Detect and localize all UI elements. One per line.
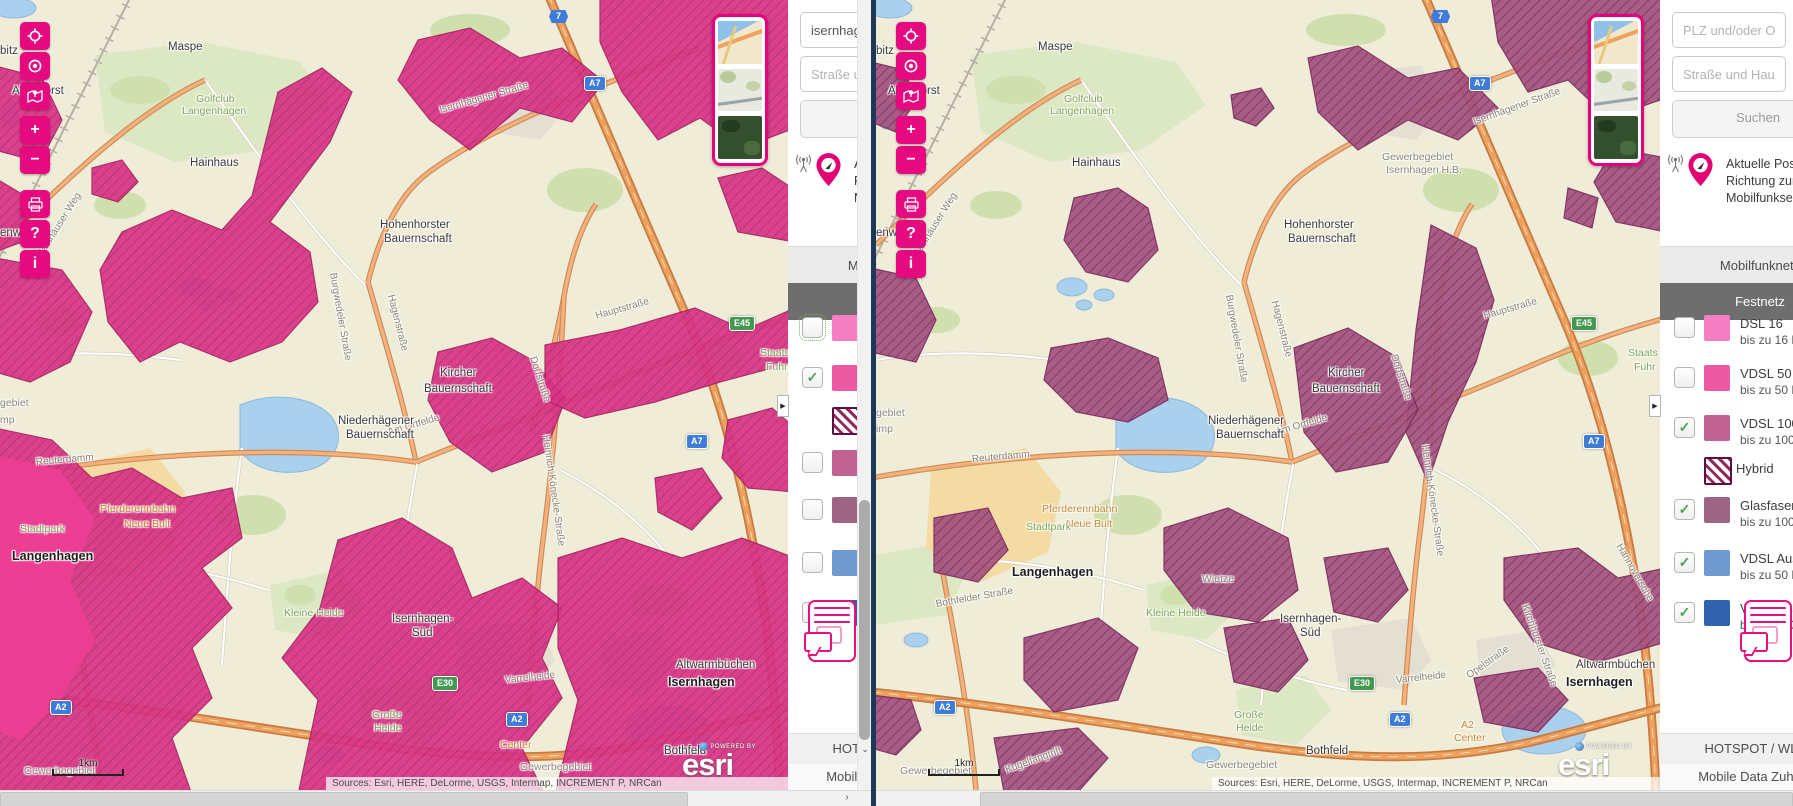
legend-button[interactable] <box>20 82 50 110</box>
basemap-street-thumbnail[interactable] <box>718 21 762 64</box>
color-swatch <box>1704 600 1730 626</box>
legend-label: VDSL Ausbau <box>1740 551 1793 566</box>
feedback-widget[interactable] <box>1744 600 1792 662</box>
horizontal-scrollbar[interactable]: › <box>0 790 871 806</box>
info-line: Richtung zum nächsten <box>1726 173 1793 190</box>
window-left: + − ? i 1km Sources: Esri, HERE, DeLorme… <box>0 0 871 806</box>
search-button[interactable]: Suchen <box>800 100 857 138</box>
color-swatch <box>832 497 857 523</box>
locate-button[interactable] <box>20 52 50 80</box>
tab-mobilfunknetz[interactable]: Mobilfunknetz <box>1660 246 1793 284</box>
locate-icon <box>27 58 43 74</box>
legend-sublabel: bis zu 50 MBit/s <box>1740 568 1793 582</box>
basemap-street-thumbnail[interactable] <box>1594 21 1638 64</box>
basemap-graphics <box>876 0 1660 790</box>
legend-sublabel: bis zu 50 MBit/s <box>1740 383 1793 397</box>
color-swatch <box>1704 497 1730 523</box>
checkbox-glasfaser[interactable] <box>802 499 823 520</box>
location-pin-icon <box>815 152 842 187</box>
map-pin-icon <box>902 88 920 104</box>
checkbox-vdsl50[interactable] <box>1674 367 1695 388</box>
color-swatch <box>1704 550 1730 576</box>
locate-icon <box>903 58 919 74</box>
color-swatch <box>1704 415 1730 441</box>
current-position-info: Aktuelle Position Richtung zum nächsten … <box>796 152 857 207</box>
window-right: + − ? i 1km Sources: Esri, HERE, DeLorme… <box>876 0 1793 806</box>
chat-bubble-icon <box>1740 632 1768 652</box>
basemap-switcher[interactable] <box>1588 14 1644 166</box>
color-swatch <box>832 365 857 391</box>
color-swatch <box>1704 315 1730 341</box>
info-line: Mobilfunksender <box>1726 190 1793 207</box>
vertical-scrollbar[interactable]: ⌄ <box>857 0 871 790</box>
legend-button[interactable] <box>896 82 926 110</box>
checkbox-ausbau50[interactable]: ✓ <box>1674 552 1695 573</box>
target-icon <box>903 28 919 44</box>
help-button[interactable]: ? <box>20 220 50 248</box>
panel-expander[interactable]: ▶ <box>777 395 789 417</box>
checkbox-vdsl100[interactable]: ✓ <box>1674 417 1695 438</box>
zoom-in-button[interactable]: + <box>20 116 50 144</box>
basemap-graphics <box>0 0 788 790</box>
target-icon <box>27 28 43 44</box>
search-button[interactable]: Suchen <box>1672 100 1793 138</box>
zoom-out-button[interactable]: − <box>896 146 926 174</box>
legend-sublabel: bis zu 100 MBit/s <box>1740 433 1793 447</box>
printer-icon <box>27 197 44 212</box>
map-pin-icon <box>26 88 44 104</box>
help-button[interactable]: ? <box>896 220 926 248</box>
panel-expander[interactable]: ▶ <box>1649 395 1661 417</box>
tab-mobilfunknetz[interactable]: Mobilfunknetz <box>788 246 857 284</box>
scroll-down-arrow[interactable]: ⌄ <box>858 742 871 758</box>
zoom-extent-button[interactable] <box>20 22 50 50</box>
locate-button[interactable] <box>896 52 926 80</box>
mobile-data-row[interactable]: Mobile Data Zuhause <box>1660 764 1793 790</box>
scroll-right-arrow[interactable]: › <box>839 791 855 806</box>
checkbox-vdsl100[interactable] <box>802 452 823 473</box>
antenna-icon <box>1668 154 1683 173</box>
street-input[interactable] <box>1672 56 1786 92</box>
antenna-icon <box>796 154 811 173</box>
print-button[interactable] <box>896 190 926 218</box>
hybrid-hatch-swatch <box>832 407 857 435</box>
checkbox-vdsl50[interactable]: ✓ <box>802 367 823 388</box>
esri-logo: POWERED BY esri <box>1558 742 1638 790</box>
plz-ort-input[interactable] <box>800 12 857 48</box>
location-pin-icon <box>1687 152 1714 187</box>
scale-bar: 1km <box>928 758 1000 776</box>
basemap-satellite-thumbnail[interactable] <box>718 116 762 159</box>
basemap-satellite-thumbnail[interactable] <box>1594 116 1638 159</box>
legend-label: DSL 16 <box>1740 316 1783 331</box>
chat-bubble-icon <box>804 632 832 652</box>
side-panel-right: Suchen Aktuelle Position Richtung zum nä… <box>1660 0 1793 790</box>
checkbox-ausbau100[interactable]: ✓ <box>1674 602 1695 623</box>
info-button[interactable]: i <box>896 250 926 278</box>
coverage-map-comparison: + − ? i 1km Sources: Esri, HERE, DeLorme… <box>0 0 1793 806</box>
info-line: Aktuelle Position <box>1726 156 1793 173</box>
scrollbar-thumb[interactable] <box>980 792 1793 806</box>
current-position-info: Aktuelle Position Richtung zum nächsten … <box>1668 152 1793 207</box>
legend-label: VDSL 100 <box>1740 416 1793 431</box>
checkbox-dsl16[interactable] <box>802 317 823 338</box>
esri-logo: POWERED BY esri <box>682 742 762 790</box>
checkbox-glasfaser[interactable]: ✓ <box>1674 499 1695 520</box>
scale-bar: 1km <box>52 758 124 776</box>
horizontal-scrollbar[interactable] <box>876 790 1793 806</box>
map-toolbar: + − ? i <box>20 22 50 280</box>
zoom-extent-button[interactable] <box>896 22 926 50</box>
legend-label: Hybrid <box>1736 461 1774 476</box>
feedback-widget[interactable] <box>808 600 856 662</box>
side-panel-left: Suchen Aktuelle Position Richtung zum nä… <box>788 0 857 790</box>
checkbox-dsl16[interactable] <box>1674 317 1695 338</box>
color-swatch <box>832 450 857 476</box>
zoom-out-button[interactable]: − <box>20 146 50 174</box>
basemap-topo-thumbnail[interactable] <box>718 69 762 112</box>
plz-ort-input[interactable] <box>1672 12 1786 48</box>
color-swatch <box>832 550 857 576</box>
legend-sublabel: bis zu 16 MBit/s <box>1740 333 1793 347</box>
color-swatch <box>832 315 857 341</box>
legend-label: VDSL 50 <box>1740 366 1792 381</box>
hotspot-wlan-row[interactable]: HOTSPOT / WLAN <box>788 733 857 765</box>
info-button[interactable]: i <box>20 250 50 278</box>
map-canvas-left[interactable]: + − ? i 1km Sources: Esri, HERE, DeLorme… <box>0 0 788 790</box>
scrollbar-thumb[interactable] <box>859 500 870 740</box>
scrollbar-thumb[interactable] <box>0 792 688 806</box>
hotspot-wlan-row[interactable]: HOTSPOT / WLAN <box>1660 733 1793 765</box>
hybrid-hatch-swatch <box>1704 457 1732 485</box>
basemap-switcher[interactable] <box>712 14 768 166</box>
street-input[interactable] <box>800 56 857 92</box>
map-toolbar: + − ? i <box>896 22 926 280</box>
legend-label: Glasfaser <box>1740 498 1793 513</box>
mobile-data-row[interactable]: Mobile Data Zuhause <box>788 764 857 790</box>
legend-sublabel: bis zu 1000 MBit/s <box>1740 515 1793 529</box>
print-button[interactable] <box>20 190 50 218</box>
zoom-in-button[interactable]: + <box>896 116 926 144</box>
color-swatch <box>1704 365 1730 391</box>
printer-icon <box>903 197 920 212</box>
basemap-topo-thumbnail[interactable] <box>1594 69 1638 112</box>
map-canvas-right[interactable]: + − ? i 1km Sources: Esri, HERE, DeLorme… <box>876 0 1660 790</box>
checkbox-ausbau50[interactable] <box>802 552 823 573</box>
